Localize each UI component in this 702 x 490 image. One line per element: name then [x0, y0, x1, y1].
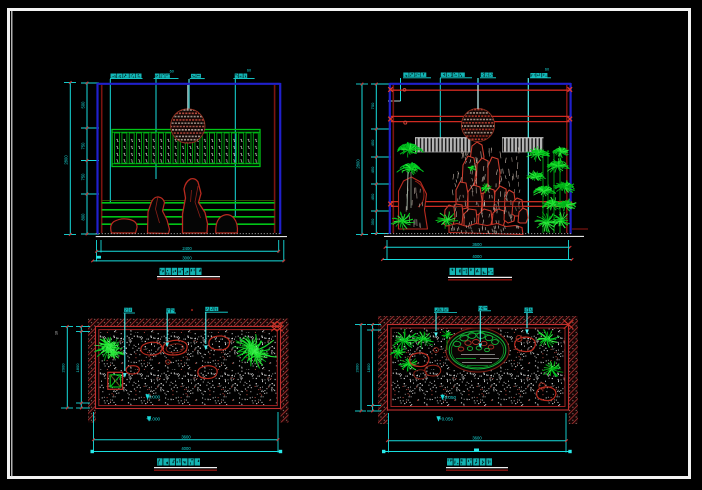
svg-text:750: 750	[81, 142, 86, 150]
svg-text:3600: 3600	[181, 434, 191, 439]
svg-text:4000: 4000	[181, 446, 191, 451]
svg-text:750: 750	[81, 173, 86, 181]
svg-text:2000: 2000	[354, 363, 359, 373]
svg-text:60: 60	[170, 69, 174, 73]
svg-text:3600: 3600	[472, 435, 482, 440]
svg-text:800: 800	[81, 213, 86, 221]
svg-text:4000: 4000	[472, 254, 482, 259]
svg-text:+0.050: +0.050	[439, 417, 454, 422]
svg-text:2800: 2800	[64, 155, 69, 165]
svg-text:3000: 3000	[182, 256, 192, 261]
svg-text:450: 450	[370, 166, 375, 173]
svg-text:1800: 1800	[366, 363, 371, 373]
svg-text:350: 350	[370, 218, 375, 225]
svg-text:2000: 2000	[61, 363, 66, 373]
svg-text:3600: 3600	[472, 242, 482, 247]
svg-text:450: 450	[370, 193, 375, 200]
svg-text:1800: 1800	[75, 363, 80, 373]
svg-text:60: 60	[545, 68, 549, 72]
svg-text:60: 60	[247, 68, 251, 72]
svg-text:450: 450	[370, 139, 375, 146]
svg-text:2400: 2400	[182, 246, 192, 251]
svg-text:10: 10	[55, 331, 59, 335]
svg-text:700: 700	[370, 102, 375, 109]
svg-text:500: 500	[81, 101, 86, 109]
svg-text:2800: 2800	[356, 159, 361, 169]
